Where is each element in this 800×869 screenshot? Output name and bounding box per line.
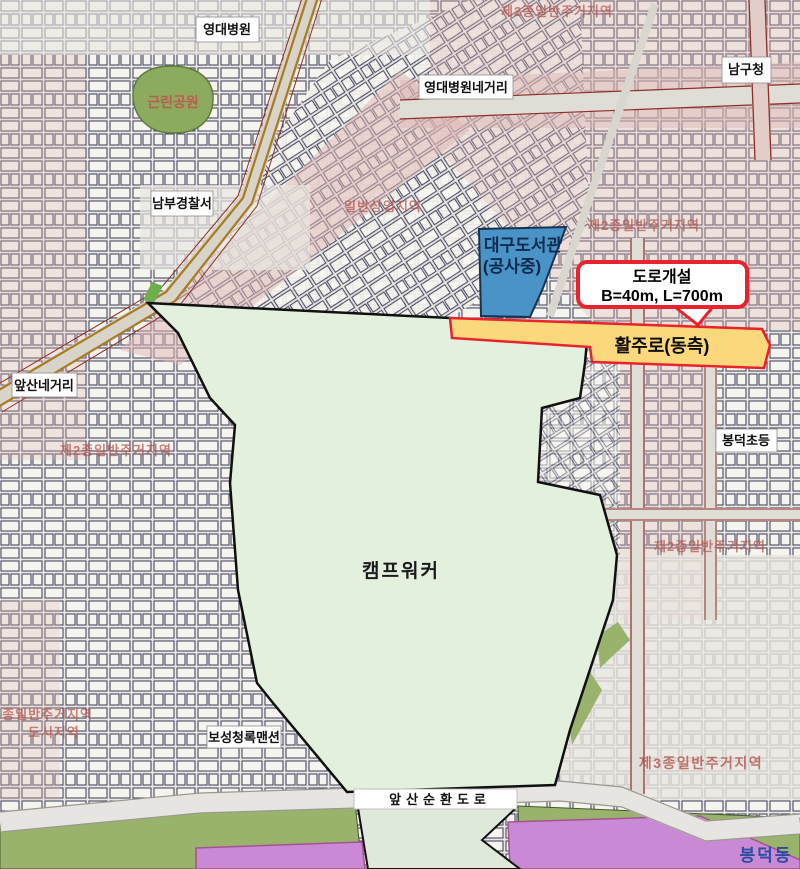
boseong-mansion-label: 보성청록맨션: [208, 730, 280, 745]
road-callout-line2: B=40m, L=700m: [601, 288, 723, 305]
map-canvas: 캠프워커 활주로(동측) 대구도서관 (공사중) 도로개설 B=40m, L=7…: [0, 0, 800, 869]
nambu-police-label: 남부경찰서: [152, 196, 212, 211]
library-label-line2: (공사중): [483, 257, 541, 276]
zone-residential1: 1종일반주거지역: [0, 707, 93, 722]
zone-residential2-left: 제2종일반주거지역: [60, 443, 172, 458]
runway-label: 활주로(동측): [615, 336, 710, 356]
yeongdae-hospital-label: 영대병원: [203, 22, 251, 37]
library-label-line1: 대구도서관: [484, 236, 563, 255]
apsan-intersection-label: 앞산네거리: [14, 378, 74, 393]
place-label-nambu-police: 남부경찰서: [151, 191, 213, 216]
bongdeok-elementary-label: 봉덕초등: [722, 433, 770, 448]
bongdeok-dong-label: 봉덕동: [740, 846, 793, 865]
place-label-bongdeok-elementary: 봉덕초등: [716, 429, 777, 452]
place-label-boseong-mansion: 보성청록맨션: [207, 726, 281, 748]
road-callout-line1: 도로개설: [633, 267, 692, 286]
place-label-yeongdae-intersection: 영대병원네거리: [419, 75, 513, 99]
zone-residential3: 제3종일반주거지역: [639, 755, 763, 771]
zone-urban-area: 도시지역: [28, 725, 80, 740]
zone-commercial: 일반상업지역: [344, 199, 422, 214]
neighborhood-park-label: 근린공원: [147, 94, 199, 110]
zone-residential2-mid: 제2종일반주거지역: [588, 218, 700, 233]
place-label-apsan-intersection: 앞산네거리: [12, 373, 77, 397]
ring-road-label: 앞산순환도로: [389, 792, 491, 807]
zone-residential2-right: 제2종일반주거지역: [654, 539, 766, 554]
zone-residential2-top: 제2종일반주거지역: [501, 4, 613, 19]
planning-map: 캠프워커 활주로(동측) 대구도서관 (공사중) 도로개설 B=40m, L=7…: [0, 0, 800, 869]
place-label-yeongdae-hospital: 영대병원: [196, 17, 259, 42]
yeongdae-intersection-label: 영대병원네거리: [424, 80, 508, 95]
camp-walker-label: 캠프워커: [362, 560, 440, 582]
namgu-office-label: 남구청: [728, 62, 764, 77]
place-label-ring-road: 앞산순환도로: [354, 789, 517, 809]
place-label-namgu-office: 남구청: [722, 57, 771, 83]
